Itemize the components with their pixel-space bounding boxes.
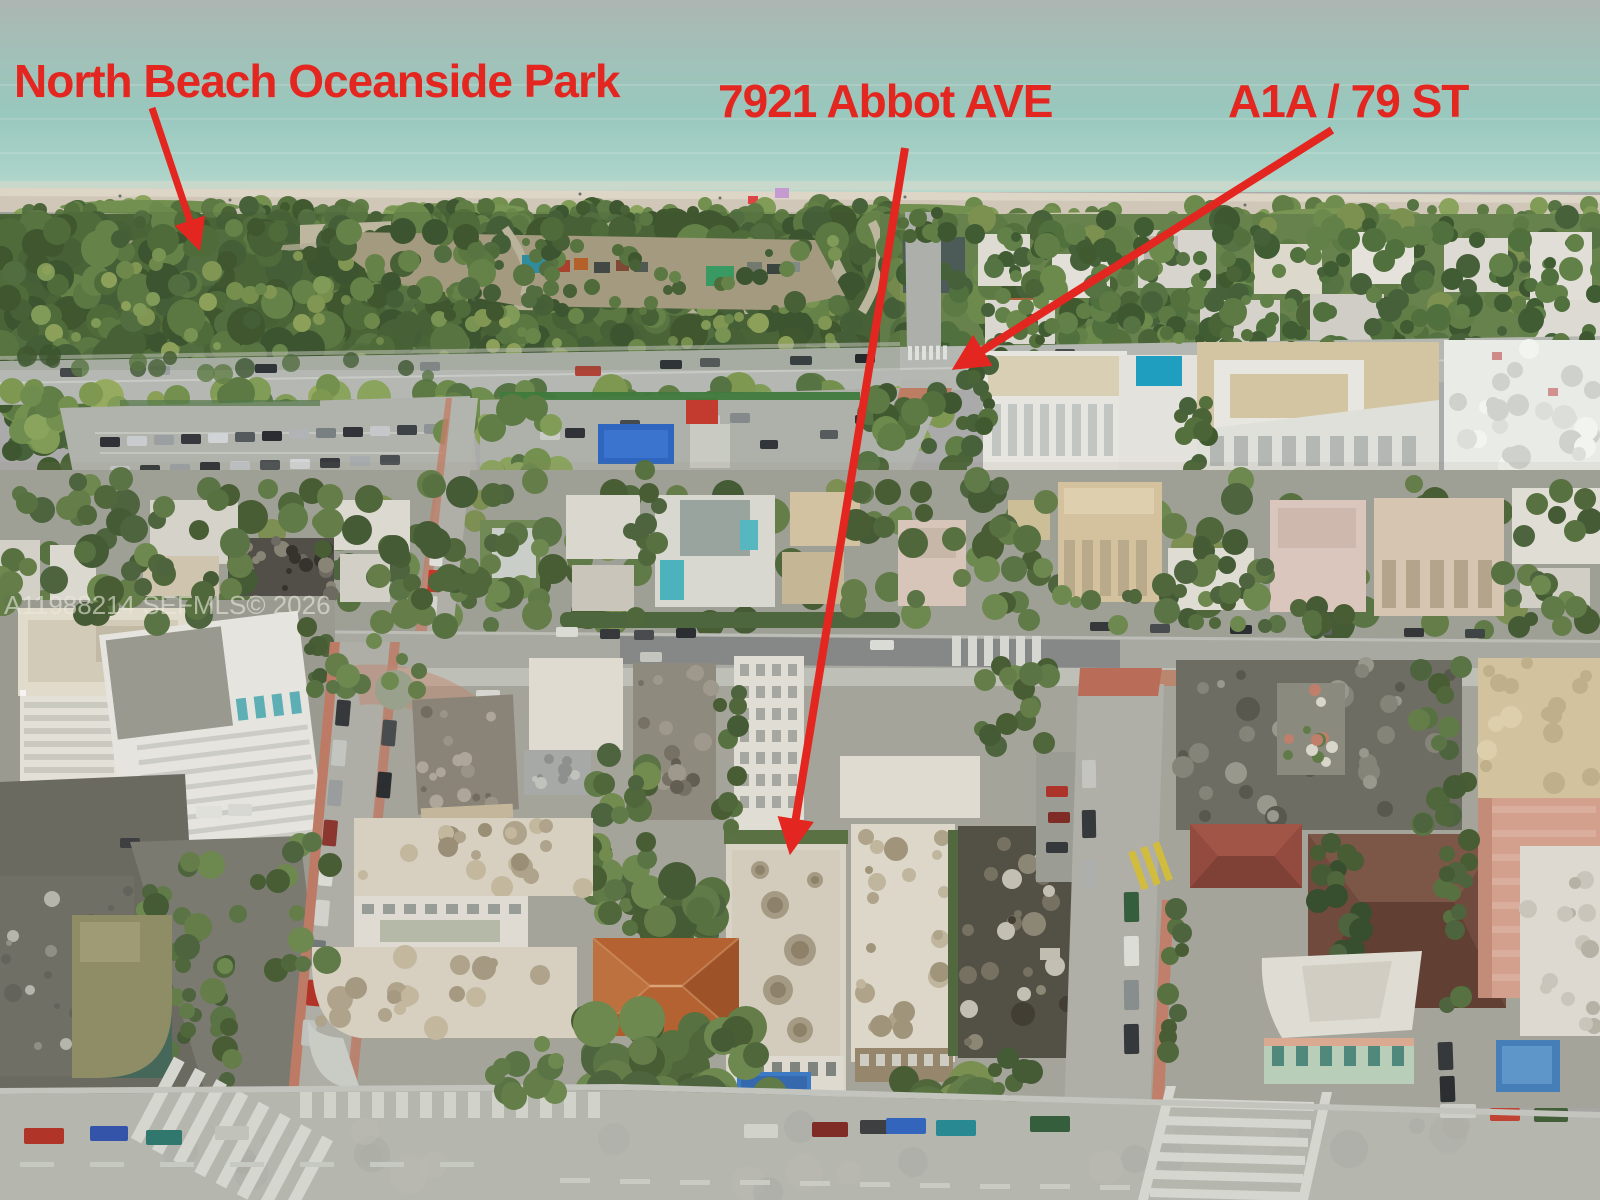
svg-text:7921 Abbot AVE: 7921 Abbot AVE [718,75,1052,127]
svg-text:A1A / 79 ST: A1A / 79 ST [1228,75,1469,127]
svg-text:North Beach Oceanside Park: North Beach Oceanside Park [14,55,621,107]
svg-text:A11988214 SEFMLS© 2026: A11988214 SEFMLS© 2026 [4,590,331,620]
